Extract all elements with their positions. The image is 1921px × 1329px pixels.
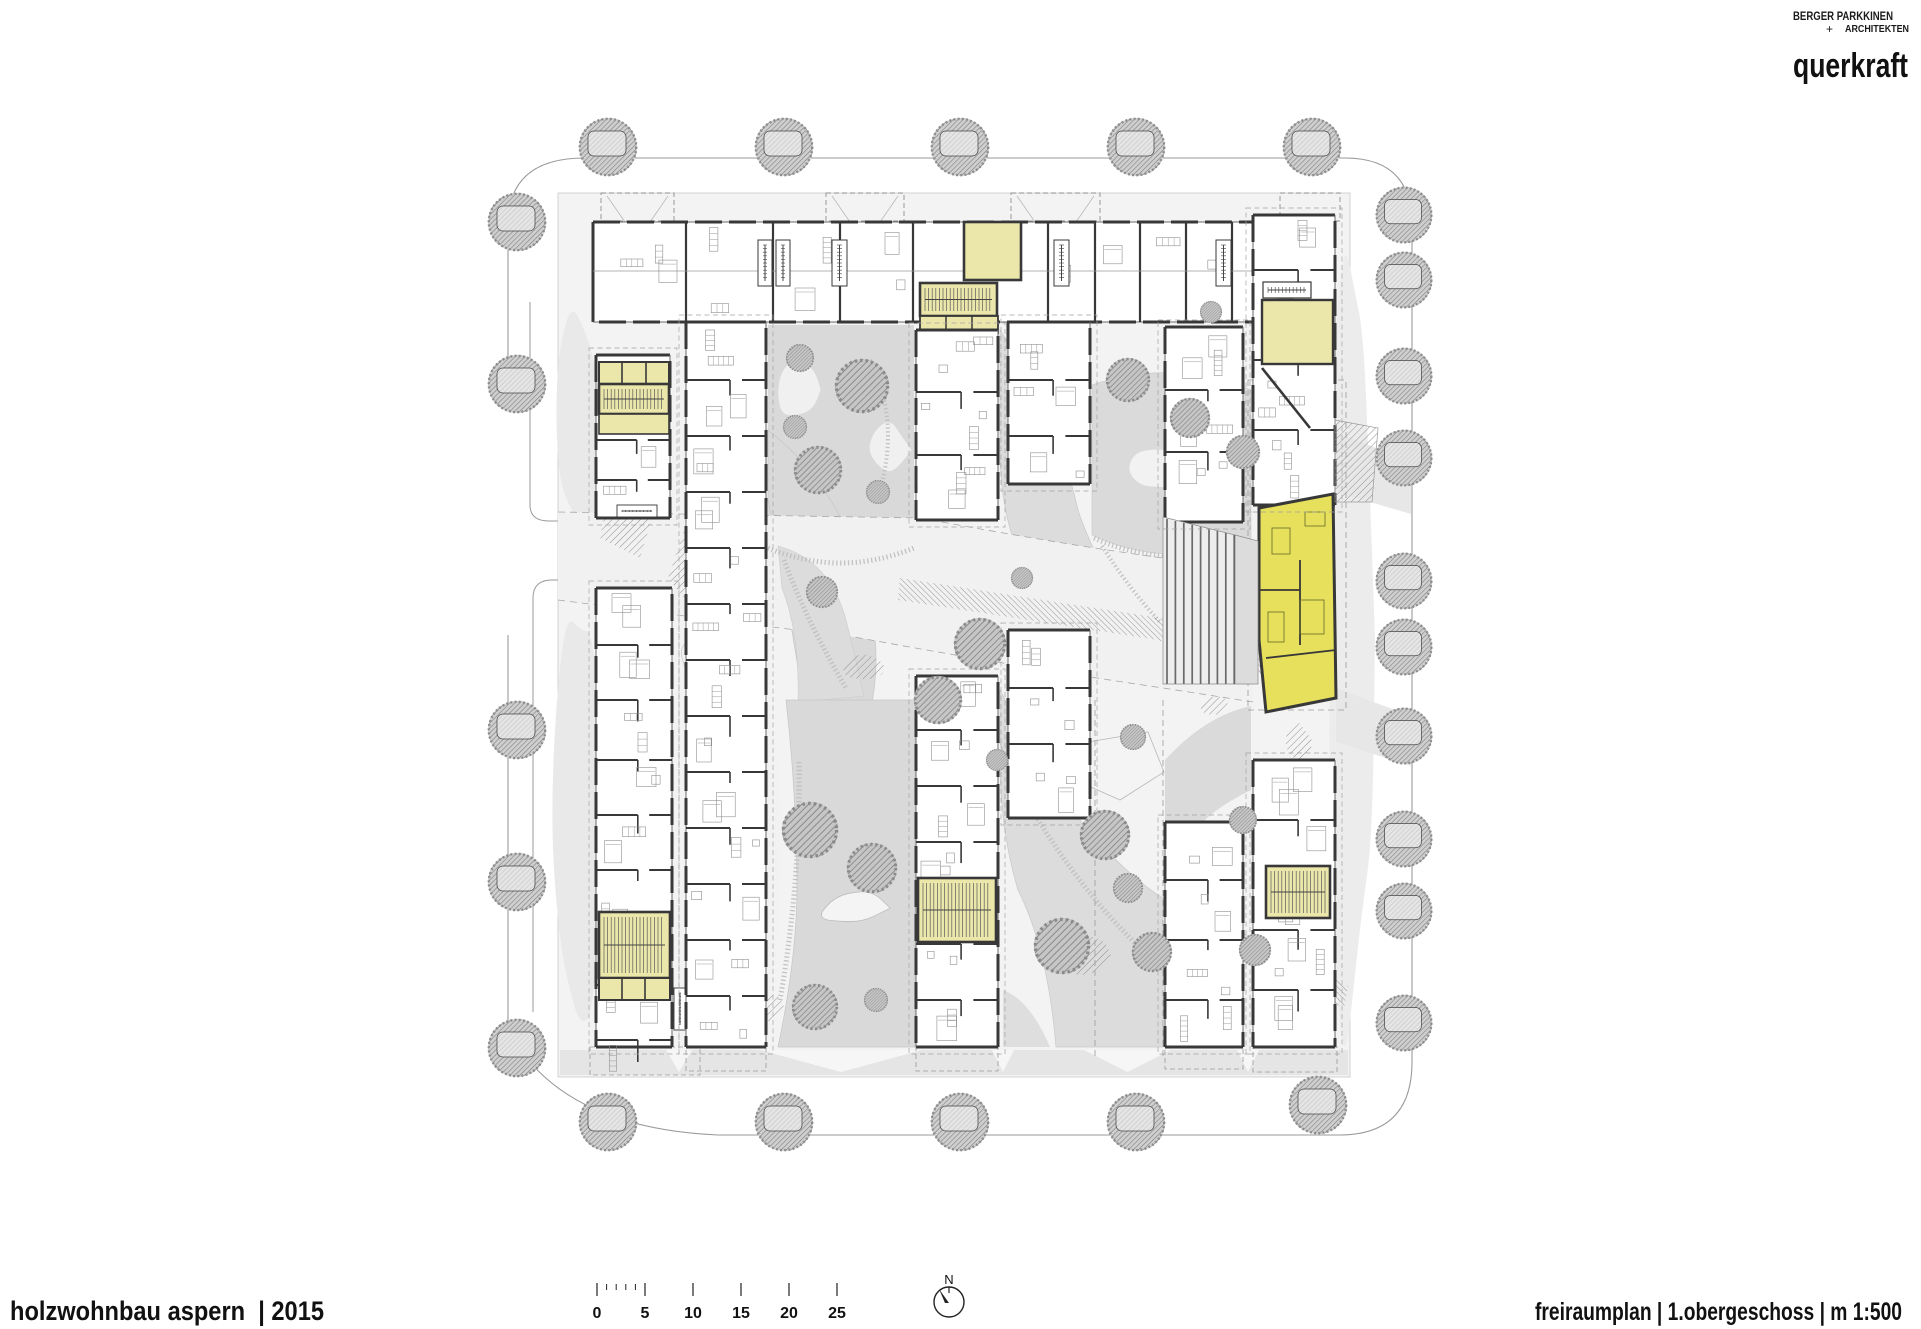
svg-text:querkraft: querkraft <box>1793 47 1908 85</box>
svg-text:15: 15 <box>732 1305 750 1322</box>
svg-text:freiraumplan | 1.obergeschoss: freiraumplan | 1.obergeschoss | m 1:500 <box>1535 1298 1902 1326</box>
svg-text:ARCHITEKTEN: ARCHITEKTEN <box>1845 23 1909 35</box>
svg-text:5: 5 <box>641 1305 650 1322</box>
svg-text:holzwohnbau aspern | 2015: holzwohnbau aspern | 2015 <box>10 1296 324 1326</box>
svg-text:20: 20 <box>780 1305 798 1322</box>
svg-text:10: 10 <box>684 1305 702 1322</box>
svg-text:+: + <box>1826 22 1833 36</box>
svg-text:0: 0 <box>593 1305 602 1322</box>
svg-text:BERGER PARKKINEN: BERGER PARKKINEN <box>1793 9 1893 23</box>
svg-text:25: 25 <box>828 1305 846 1322</box>
svg-text:N: N <box>944 1272 953 1287</box>
